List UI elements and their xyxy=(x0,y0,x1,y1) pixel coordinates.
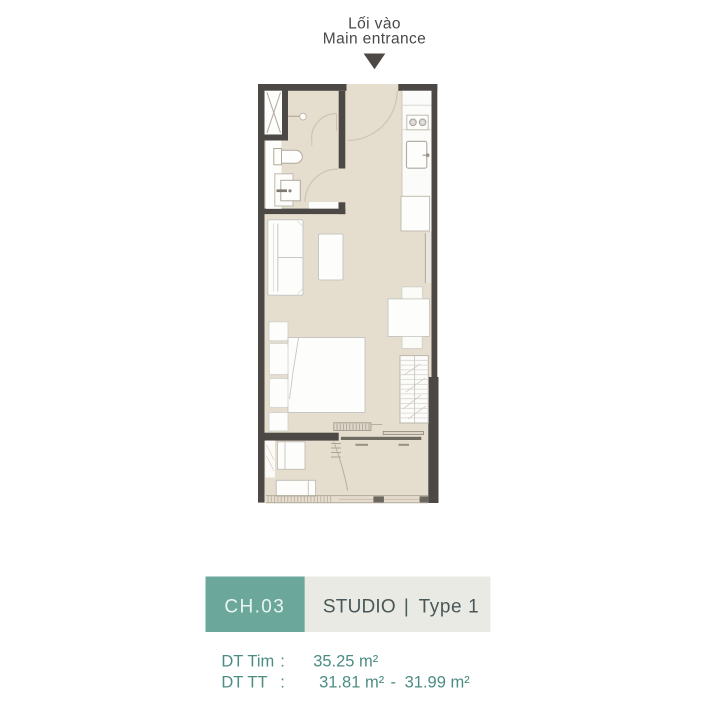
svg-text:31.81 m²: 31.81 m² xyxy=(319,674,385,692)
svg-text:-: - xyxy=(391,674,397,692)
svg-text:35.25 m²: 35.25 m² xyxy=(313,653,379,671)
svg-text:DT Tim: DT Tim xyxy=(221,653,274,671)
svg-text:DT TT: DT TT xyxy=(221,674,267,692)
svg-text:STUDIO: STUDIO xyxy=(323,597,396,618)
svg-text:Type 1: Type 1 xyxy=(419,597,480,618)
svg-text::: : xyxy=(280,653,285,671)
svg-text:|: | xyxy=(404,597,409,618)
svg-text:CH.03: CH.03 xyxy=(224,597,285,618)
svg-text:Main entrance: Main entrance xyxy=(323,31,426,48)
svg-text::: : xyxy=(280,674,285,692)
svg-text:31.99 m²: 31.99 m² xyxy=(405,674,471,692)
